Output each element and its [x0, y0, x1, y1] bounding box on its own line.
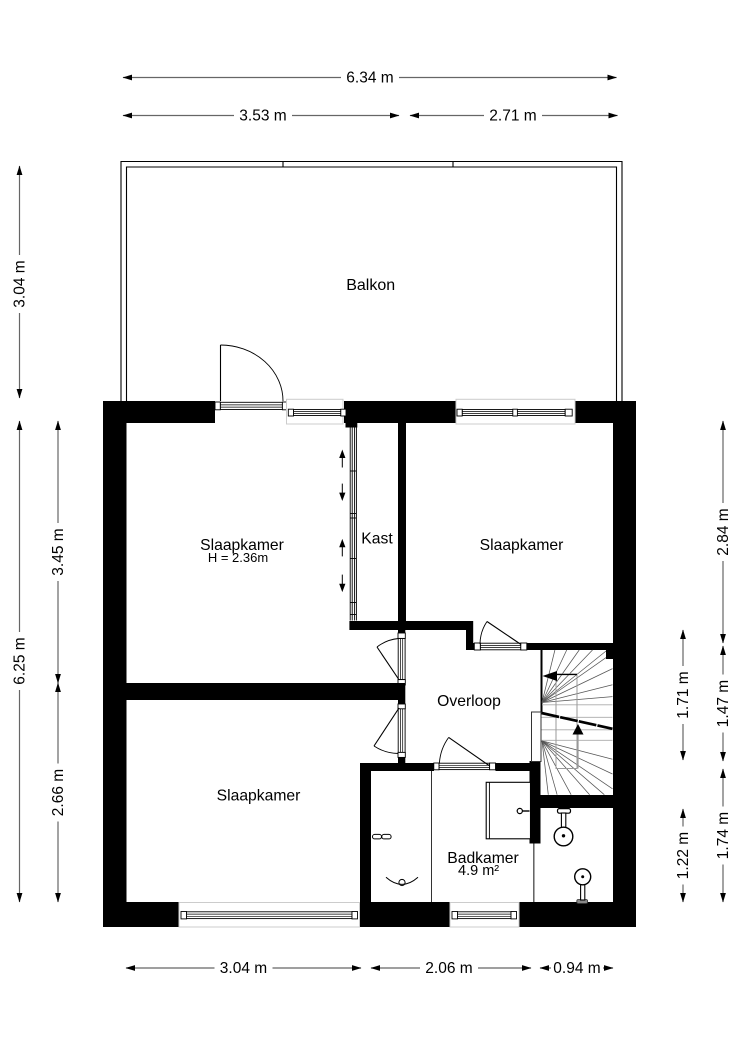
svg-text:2.66 m: 2.66 m [50, 769, 67, 816]
svg-text:2.71 m: 2.71 m [489, 108, 536, 125]
svg-text:3.53 m: 3.53 m [239, 108, 286, 125]
svg-text:3.04 m: 3.04 m [220, 960, 267, 977]
svg-text:H = 2.36m: H = 2.36m [208, 550, 268, 565]
svg-text:3.04 m: 3.04 m [12, 260, 29, 307]
svg-text:1.22 m: 1.22 m [675, 832, 692, 879]
svg-text:4.9 m²: 4.9 m² [458, 863, 499, 879]
svg-text:1.74 m: 1.74 m [715, 812, 732, 859]
svg-text:1.47 m: 1.47 m [715, 680, 732, 727]
svg-text:Slaapkamer: Slaapkamer [217, 788, 301, 805]
svg-text:6.34 m: 6.34 m [346, 70, 393, 87]
svg-text:Slaapkamer: Slaapkamer [480, 537, 564, 554]
svg-text:2.84 m: 2.84 m [715, 508, 732, 555]
svg-text:6.25 m: 6.25 m [12, 637, 29, 684]
svg-text:2.06 m: 2.06 m [425, 960, 472, 977]
svg-text:Balkon: Balkon [346, 277, 395, 294]
svg-text:Overloop: Overloop [437, 693, 501, 710]
svg-text:0.94 m: 0.94 m [553, 960, 600, 977]
svg-text:1.71 m: 1.71 m [675, 671, 692, 718]
svg-text:Kast: Kast [361, 531, 393, 548]
svg-text:3.45 m: 3.45 m [50, 528, 67, 575]
